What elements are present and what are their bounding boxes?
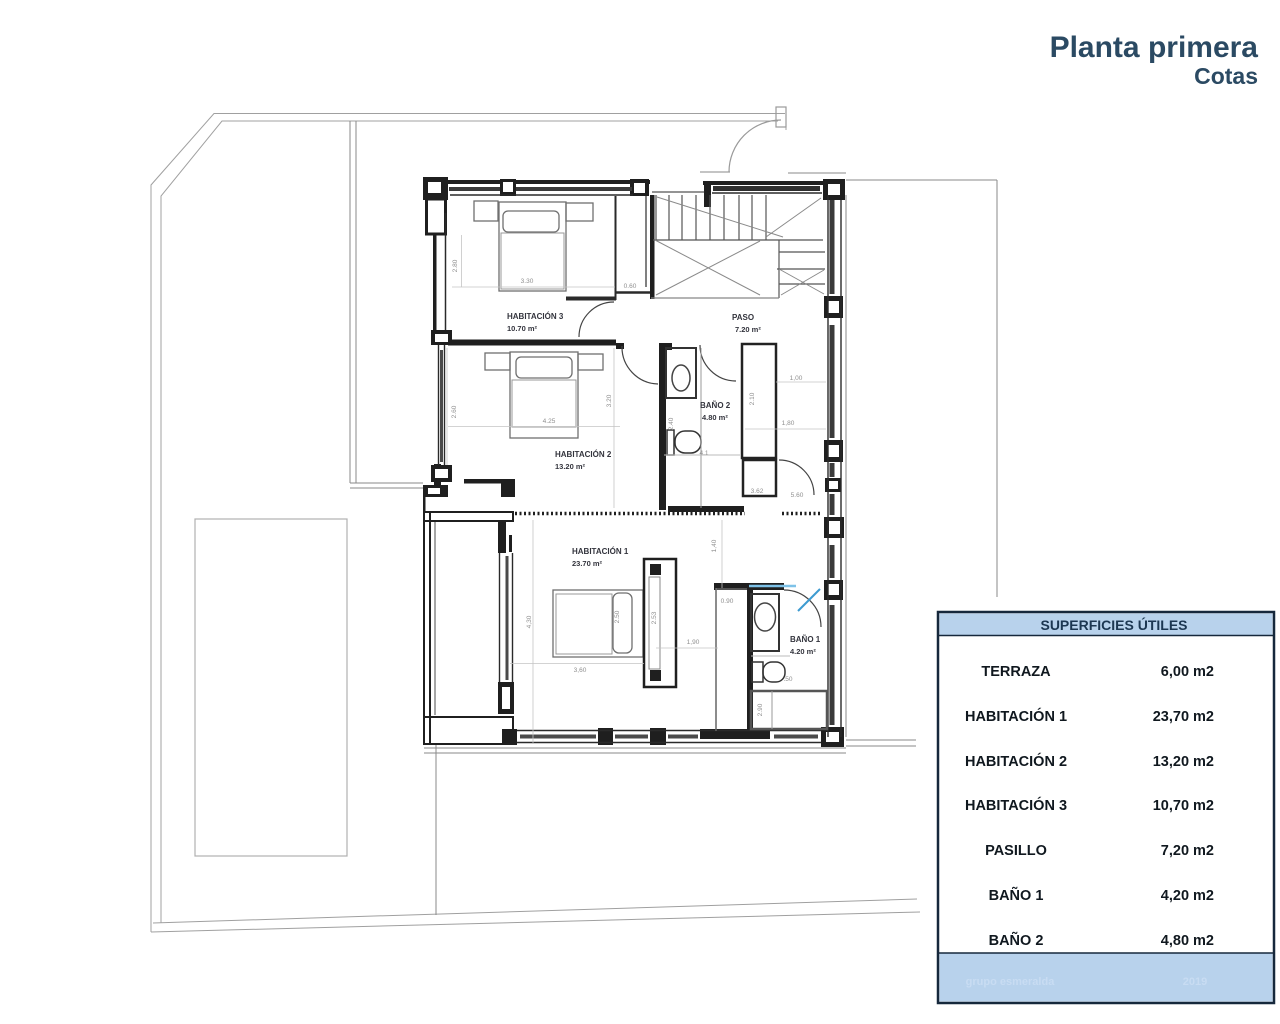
svg-text:1,40: 1,40 xyxy=(711,539,718,552)
svg-text:3.30: 3.30 xyxy=(521,278,534,285)
svg-text:BAÑO 2: BAÑO 2 xyxy=(989,931,1044,949)
svg-text:2.10: 2.10 xyxy=(749,392,756,405)
svg-text:BAÑO 1: BAÑO 1 xyxy=(989,886,1044,904)
svg-text:0.90: 0.90 xyxy=(721,598,734,605)
svg-text:6,00 m2: 6,00 m2 xyxy=(1161,664,1214,680)
svg-text:5.60: 5.60 xyxy=(791,492,804,499)
svg-text:1,00: 1,00 xyxy=(790,375,803,382)
svg-text:HABITACIÓN 2: HABITACIÓN 2 xyxy=(555,450,612,459)
svg-text:HABITACIÓN 1: HABITACIÓN 1 xyxy=(572,547,629,556)
svg-text:grupo esmeralda: grupo esmeralda xyxy=(966,976,1056,988)
svg-text:2.40: 2.40 xyxy=(668,417,675,430)
svg-text:SUPERFICIES ÚTILES: SUPERFICIES ÚTILES xyxy=(1040,616,1187,633)
svg-text:23.70 m²: 23.70 m² xyxy=(572,559,603,568)
svg-text:Planta primera: Planta primera xyxy=(1050,31,1259,64)
svg-text:3,60: 3,60 xyxy=(574,667,587,674)
svg-text:4.20 m²: 4.20 m² xyxy=(790,647,816,656)
svg-text:2.50: 2.50 xyxy=(614,610,621,623)
svg-text:23,70 m2: 23,70 m2 xyxy=(1153,709,1214,725)
svg-text:4.80 m²: 4.80 m² xyxy=(702,413,728,422)
svg-text:PASO: PASO xyxy=(732,313,754,322)
svg-text:HABITACIÓN 2: HABITACIÓN 2 xyxy=(965,752,1067,770)
svg-text:HABITACIÓN 3: HABITACIÓN 3 xyxy=(507,312,564,321)
svg-text:2.60: 2.60 xyxy=(451,405,458,418)
svg-text:4.1: 4.1 xyxy=(699,450,708,457)
svg-text:13.20 m²: 13.20 m² xyxy=(555,462,586,471)
svg-text:10,70 m2: 10,70 m2 xyxy=(1153,798,1214,814)
svg-text:PASILLO: PASILLO xyxy=(985,843,1047,859)
svg-text:2019: 2019 xyxy=(1183,976,1207,988)
svg-text:4.25: 4.25 xyxy=(543,418,556,425)
svg-text:10.70 m²: 10.70 m² xyxy=(507,324,538,333)
svg-text:4,80 m2: 4,80 m2 xyxy=(1161,933,1214,949)
svg-text:TERRAZA: TERRAZA xyxy=(981,664,1051,680)
svg-text:BAÑO 1: BAÑO 1 xyxy=(790,635,821,644)
svg-text:7,20 m2: 7,20 m2 xyxy=(1161,843,1214,859)
svg-text:1,80: 1,80 xyxy=(782,420,795,427)
svg-text:BAÑO 2: BAÑO 2 xyxy=(700,401,731,410)
svg-text:2.90: 2.90 xyxy=(757,703,764,716)
svg-text:4,30: 4,30 xyxy=(526,615,533,628)
svg-text:.50: .50 xyxy=(783,676,792,683)
svg-text:0.60: 0.60 xyxy=(624,283,637,290)
svg-text:HABITACIÓN 1: HABITACIÓN 1 xyxy=(965,707,1067,725)
svg-text:3.20: 3.20 xyxy=(606,394,613,407)
svg-text:7.20 m²: 7.20 m² xyxy=(735,325,761,334)
svg-text:Cotas: Cotas xyxy=(1194,63,1258,89)
svg-text:4,20 m2: 4,20 m2 xyxy=(1161,888,1214,904)
svg-text:2.80: 2.80 xyxy=(452,259,459,272)
svg-text:3.62: 3.62 xyxy=(751,488,764,495)
svg-text:13,20 m2: 13,20 m2 xyxy=(1153,754,1214,770)
svg-text:1,90: 1,90 xyxy=(687,639,700,646)
svg-text:HABITACIÓN 3: HABITACIÓN 3 xyxy=(965,796,1067,814)
svg-text:2.53: 2.53 xyxy=(651,611,658,624)
